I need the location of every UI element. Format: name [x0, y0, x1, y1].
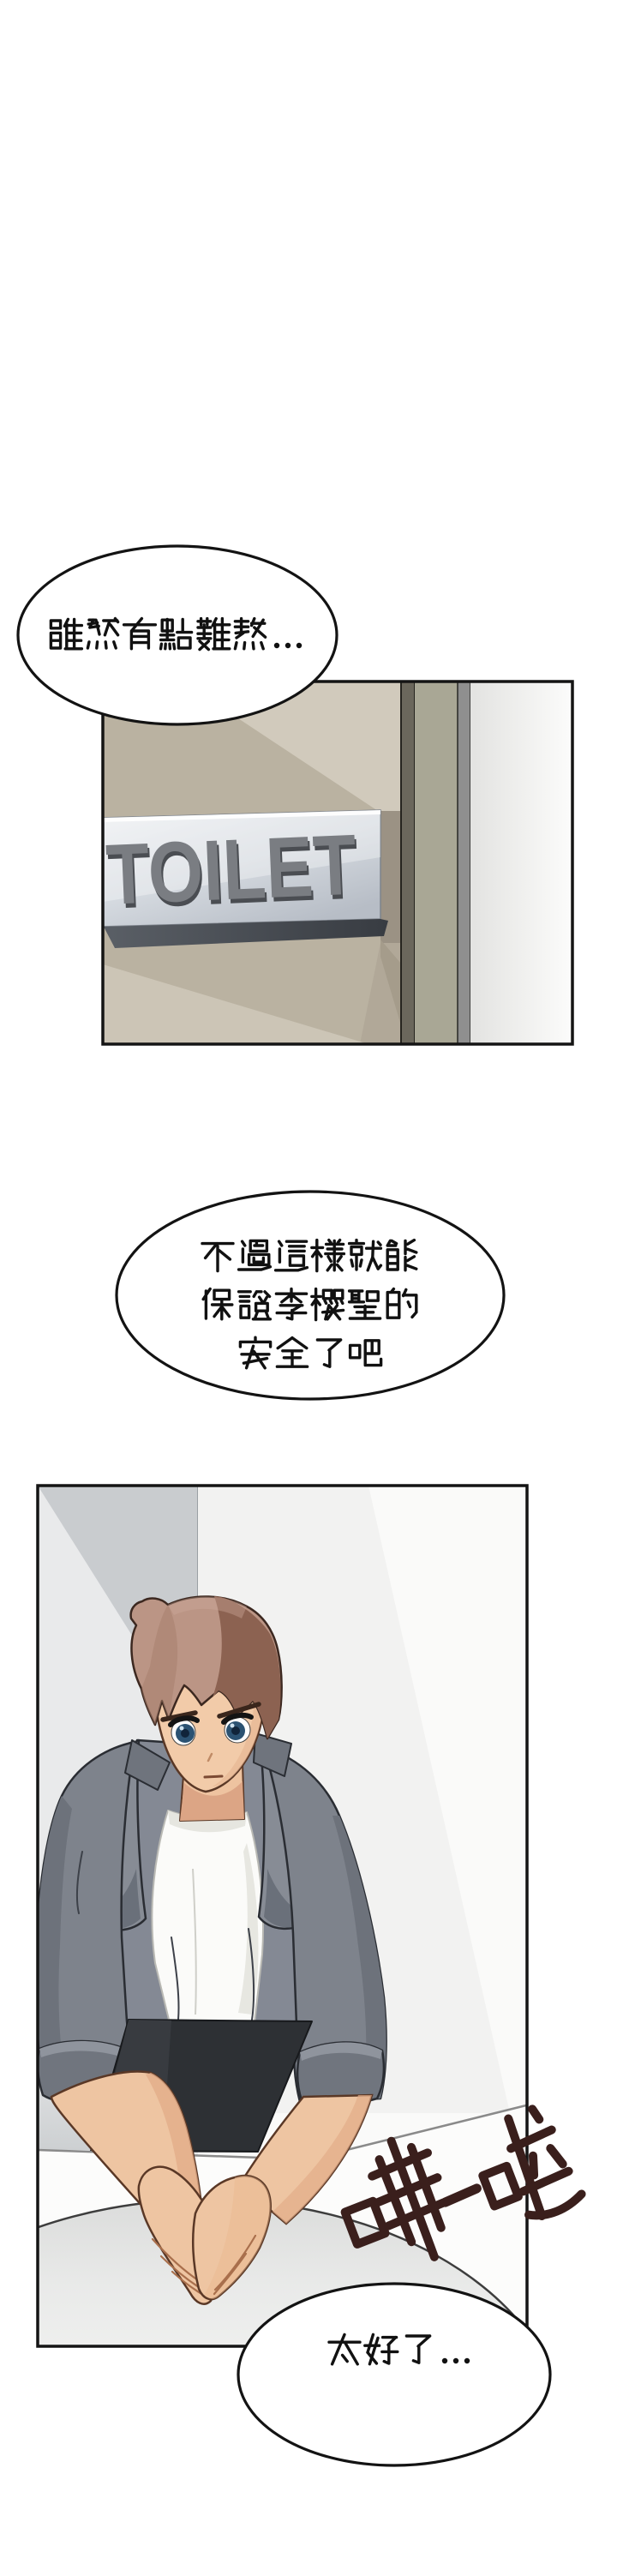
svg-text:TOILET: TOILET: [105, 817, 358, 923]
